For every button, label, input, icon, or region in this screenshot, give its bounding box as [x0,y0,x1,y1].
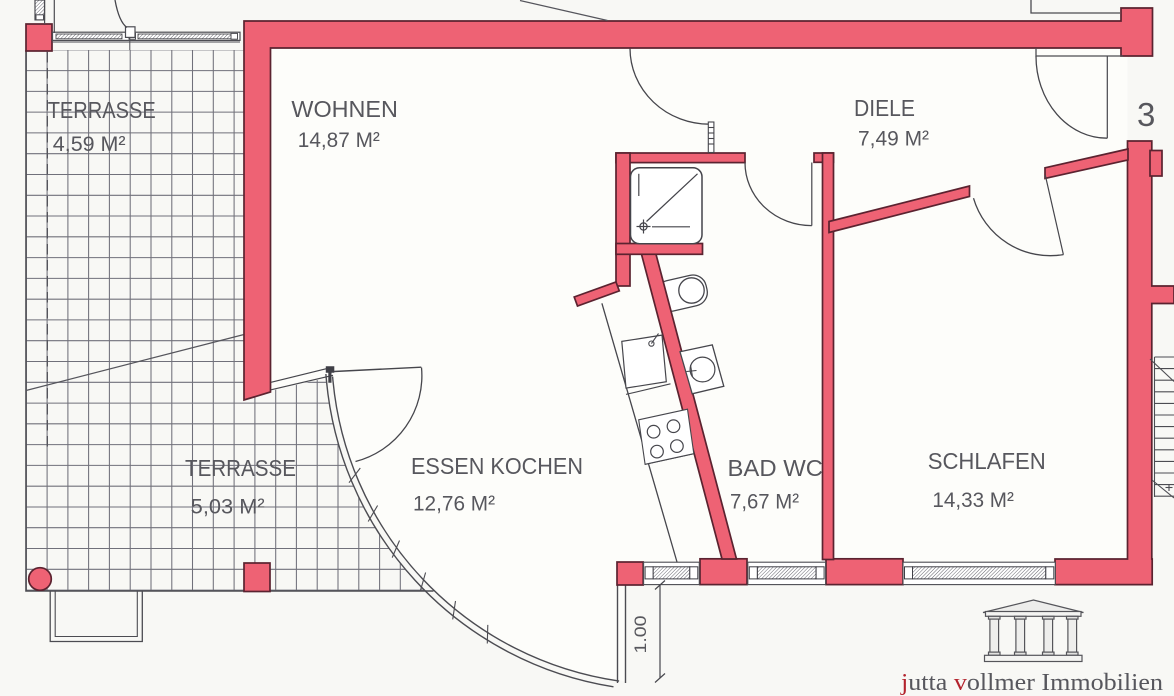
svg-text:SCHLAFEN: SCHLAFEN [928,448,1046,474]
svg-text:14,87 M²: 14,87 M² [298,129,380,152]
svg-text:TERRASSE: TERRASSE [48,97,156,123]
svg-text:5,03 M²: 5,03 M² [191,496,265,519]
svg-text:3: 3 [1137,96,1155,133]
svg-text:DIELE: DIELE [854,95,915,121]
svg-text:WOHNEN: WOHNEN [291,96,398,122]
svg-text:jutta vollmer Immobilien: jutta vollmer Immobilien [900,669,1163,696]
svg-text:BAD WC: BAD WC [728,455,824,481]
svg-text:1.00: 1.00 [631,616,650,654]
svg-text:TERRASSE: TERRASSE [185,455,296,481]
svg-text:14,33 M²: 14,33 M² [932,489,1014,512]
svg-text:7,67 M²: 7,67 M² [730,491,799,514]
svg-text:7,49 M²: 7,49 M² [858,128,929,151]
svg-text:12,76 M²: 12,76 M² [413,493,495,516]
svg-text:4,59 M²: 4,59 M² [53,133,126,156]
svg-text:ESSEN KOCHEN: ESSEN KOCHEN [411,453,583,479]
